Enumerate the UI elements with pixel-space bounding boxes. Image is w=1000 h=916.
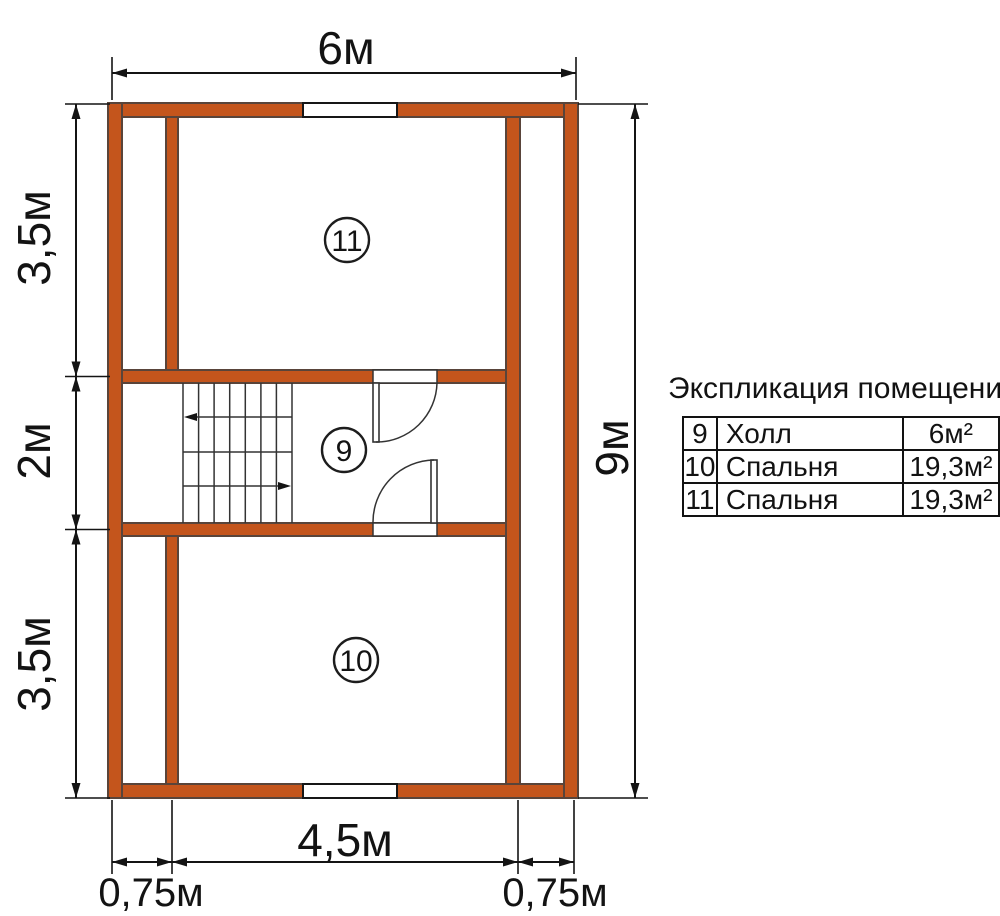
room9-number: 9 bbox=[336, 435, 353, 468]
wall-between-room9-room10 bbox=[122, 523, 506, 536]
legend-cell-name: Холл bbox=[717, 417, 903, 450]
dim-label-bottom-right: 0,75м bbox=[502, 871, 607, 915]
legend-cell-name: Спальня bbox=[717, 450, 903, 483]
dim-label-height: 9м bbox=[586, 419, 638, 476]
legend-cell-num: 11 bbox=[683, 483, 717, 516]
legend-row: 11 Спальня 19,3м² bbox=[683, 483, 999, 516]
dimension-bottom: 4,5м 0,75м 0,75м bbox=[98, 800, 607, 915]
legend-cell-area: 19,3м² bbox=[903, 450, 999, 483]
wall-inner-left-lower bbox=[166, 536, 178, 784]
dim-label-left-bottom: 3,5м bbox=[8, 616, 60, 712]
legend-cell-area: 19,3м² bbox=[903, 483, 999, 516]
legend-cell-num: 9 bbox=[683, 417, 717, 450]
room10-number: 10 bbox=[339, 645, 372, 678]
dimension-right: 9м bbox=[578, 104, 648, 798]
dim-label-bottom-center: 4,5м bbox=[297, 814, 393, 866]
door-opening bbox=[373, 523, 437, 536]
staircase bbox=[183, 383, 292, 523]
legend-cell-num: 10 bbox=[683, 450, 717, 483]
legend-row: 10 Спальня 19,3м² bbox=[683, 450, 999, 483]
door-leaf bbox=[373, 383, 379, 442]
window-top bbox=[303, 103, 397, 117]
legend-row: 9 Холл 6м² bbox=[683, 417, 999, 450]
wall-inner-right bbox=[506, 117, 520, 784]
dimension-left: 3,5м 2м 3,5м bbox=[8, 104, 110, 798]
wall-outer-left bbox=[108, 103, 122, 798]
legend-cell-name: Спальня bbox=[717, 483, 903, 516]
wall-outer-right bbox=[564, 103, 578, 798]
wall-inner-left-upper bbox=[166, 117, 178, 370]
legend-title: Экспликация помещений bbox=[668, 372, 1000, 406]
floor-plan-page: 11 9 10 6м 3,5м bbox=[0, 0, 1000, 916]
dim-label-left-middle: 2м bbox=[8, 422, 60, 479]
dim-label-left-top: 3,5м bbox=[8, 190, 60, 286]
door-opening bbox=[373, 370, 437, 383]
dimension-top: 6м bbox=[112, 22, 576, 100]
stair-treads bbox=[183, 383, 292, 523]
room11-number: 11 bbox=[331, 225, 362, 258]
window-bottom bbox=[303, 784, 397, 798]
legend-cell-area: 6м² bbox=[903, 417, 999, 450]
door-leaf bbox=[431, 460, 437, 523]
door-room9-room10 bbox=[373, 460, 437, 536]
dim-label-width: 6м bbox=[317, 22, 374, 74]
room-markers: 11 9 10 bbox=[322, 218, 378, 682]
door-swing-arc bbox=[373, 460, 434, 523]
dim-label-bottom-left: 0,75м bbox=[98, 871, 203, 915]
wall-between-room11-room9 bbox=[122, 370, 506, 383]
legend-table: 9 Холл 6м² 10 Спальня 19,3м² 11 Спальня … bbox=[682, 416, 1000, 517]
door-room11-room9 bbox=[373, 370, 437, 442]
door-swing-arc bbox=[376, 383, 437, 442]
